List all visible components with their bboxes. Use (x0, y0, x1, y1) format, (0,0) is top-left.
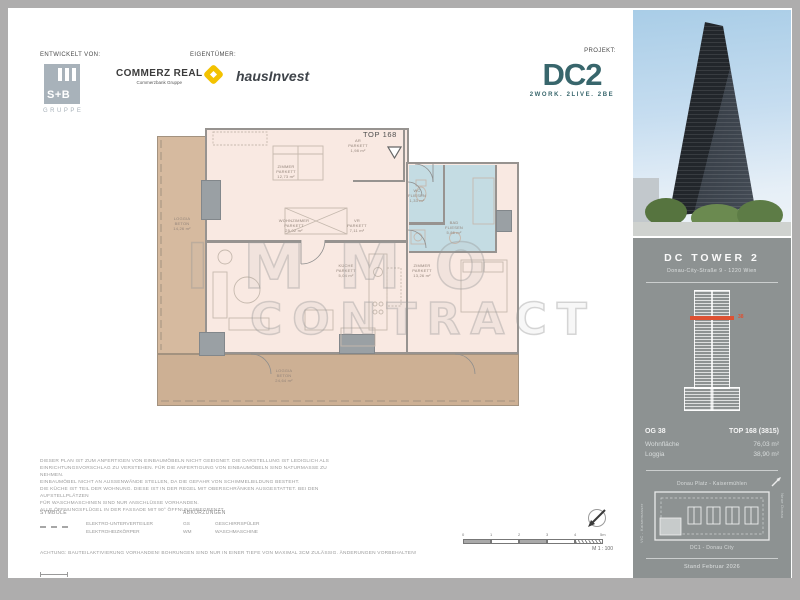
floor-label: OG 38 (645, 428, 666, 435)
note-line: DIE KÜCHE IST TEIL DER WOHNUNG. DIESE IS… (40, 486, 340, 500)
commerzbank-ring-icon (203, 64, 224, 85)
commerz-real-subtitle: Commerzbank Gruppe (116, 80, 202, 85)
divider (646, 470, 778, 471)
sb-gruppe-logo: S+B (44, 64, 80, 104)
sb-logo-text: S+B (47, 89, 70, 101)
wall-zimmer-south-right (325, 240, 407, 243)
unit-info-row: OG 38 TOP 168 (3815) (645, 428, 779, 435)
floor-plan: TOP 168 ZIMMERPARKETT12,73 m² ARPARKETT1… (155, 122, 523, 410)
scale-ratio-label: M 1 : 100 (592, 546, 613, 552)
room-label-bad: BADFLIESEN5,86 m² (431, 220, 477, 235)
plan-notes: DIESER PLAN IST ZUM ANFERTIGEN VON EINBA… (40, 458, 340, 514)
sb-logo-bar (58, 68, 62, 81)
loggia-bottom-area (157, 354, 519, 406)
commerz-real-name: COMMERZ REAL (116, 68, 202, 79)
symbols-header: SYMBOLE (40, 510, 67, 516)
loggia-area-row: Loggia 38,90 m² (645, 451, 779, 458)
building-title: DC TOWER 2 (633, 252, 791, 264)
photo-ground (633, 222, 791, 236)
room-label-vorraum: VRPARKETT7,11 m² (334, 218, 380, 233)
divider (646, 558, 778, 559)
scale-segment (575, 539, 603, 544)
commerz-real-logo: COMMERZ REAL Commerzbank Gruppe (116, 68, 202, 85)
site-map-west-label: VIC - Kaiserwasser (639, 493, 644, 543)
document-page: ENTWICKELT VON: S+B GRUPPE EIGENTÜMER: C… (8, 8, 792, 578)
room-label-wc: WCFLIESEN1,33 m² (394, 188, 440, 203)
note-line: EINBAUMÖBEL NICHT AN AUSSENWÄNDE STELLEN… (40, 479, 340, 486)
date-note: Stand Februar 2026 (633, 564, 791, 570)
unit-number: TOP 168 (3815) (729, 428, 779, 435)
scale-tick: 0 (462, 532, 464, 537)
north-arrow-icon (584, 505, 610, 531)
wall-zimmer-south-left (207, 240, 301, 243)
wall-pillar (339, 334, 375, 354)
living-area-value: 76,03 m² (753, 441, 779, 448)
scale-bar: 0 1 2 3 4 5m M 1 : 100 (463, 532, 613, 556)
abbr-key: WM (183, 530, 192, 535)
room-label-loggia-bottom: LOGGIABETON24,64 m² (261, 368, 307, 383)
site-map-north-label: Donau Platz - Kaisermühlen (633, 481, 791, 487)
abbreviations-header: ABKÜRZUNGEN (183, 510, 226, 516)
symbol-label: ELEKTRO-UNTERVERTEILER (86, 522, 153, 527)
warning-note: ACHTUNG: BAUTEILAKTIVIERUNG VORHANDEN! B… (40, 551, 460, 556)
abbr-key: GS (183, 522, 190, 527)
elevation-tower-body (694, 290, 730, 389)
wall-pillar (201, 180, 221, 220)
bathroom-block (409, 165, 497, 253)
note-line: EINRICHTUNGSVORSCHLAG ZU VERSTEHEN. FÜR … (40, 465, 340, 479)
tower-photo (633, 10, 791, 236)
room-label-abstellraum: ARPARKETT1,98 m² (335, 138, 381, 153)
site-map (654, 491, 770, 541)
note-line: DIESER PLAN IST ZUM ANFERTIGEN VON EINBA… (40, 458, 340, 465)
note-line: FÜR WASCHMASCHINEN SIND NUR ANSCHLÜSSE V… (40, 500, 340, 507)
loggia-label: Loggia (645, 451, 665, 458)
living-area-label: Wohnfläche (645, 441, 679, 448)
building-address: Donau-City-Straße 9 - 1220 Wien (633, 268, 791, 274)
site-map-east-label: Neue Donau (780, 493, 785, 543)
scale-segment (519, 539, 547, 544)
info-panel: DC TOWER 2 Donau-City-Straße 9 - 1220 Wi… (633, 238, 791, 578)
scale-tick: 2 (518, 532, 520, 537)
room-label-wohnzimmer: WOHNZIMMERPARKETT25,02 m² (271, 218, 317, 233)
symbol-electric-radiator-icon (40, 574, 68, 575)
floor-marker-label: 38 (738, 314, 744, 320)
room-label-zimmer1: ZIMMERPARKETT12,73 m² (263, 164, 309, 179)
elevation-diagram: 38 (633, 288, 791, 418)
abbr-label: WASCHMASCHINE (215, 530, 258, 535)
symbol-label: ELEKTROHEIZKÖRPER (86, 530, 140, 535)
owner-label: EIGENTÜMER: (190, 52, 236, 58)
room-label-loggia-left: LOGGIABETON14,26 m² (159, 216, 205, 231)
elevation-tower-base (684, 387, 740, 411)
entrance-marker-icon (387, 146, 402, 159)
wall-pillar (496, 210, 512, 232)
loggia-left-area (157, 136, 207, 354)
project-label: PROJEKT: (561, 48, 616, 54)
room-label-zimmer2: ZIMMERPARKETT13,26 m² (399, 263, 445, 278)
dc2-logo: DC2 2WORK. 2LIVE. 2BE (526, 60, 618, 98)
divider (646, 282, 778, 283)
sidebar: DC TOWER 2 Donau-City-Straße 9 - 1220 Wi… (633, 10, 791, 578)
living-area-row: Wohnfläche 76,03 m² (645, 441, 779, 448)
abbr-label: GESCHIRRSPÜLER (215, 522, 260, 527)
wall-pillar (199, 332, 225, 356)
scale-tick: 5m (600, 532, 606, 537)
hausinvest-logo: hausInvest (236, 68, 309, 84)
sb-logo-bar (65, 68, 69, 81)
scale-segment (547, 539, 575, 544)
loggia-value: 38,90 m² (753, 451, 779, 458)
dc2-logo-text: DC2 (526, 60, 618, 90)
scale-segment (491, 539, 519, 544)
floor-marker-band (690, 316, 734, 320)
developed-by-label: ENTWICKELT VON: (40, 52, 100, 58)
site-map-south-label: DC1 - Donau City (633, 545, 791, 551)
scale-segment (463, 539, 491, 544)
scale-tick: 4 (574, 532, 576, 537)
sb-gruppe-subtitle: GRUPPE (43, 108, 83, 114)
map-compass-icon (769, 475, 783, 489)
dc2-tagline: 2WORK. 2LIVE. 2BE (526, 92, 618, 98)
sb-logo-bar (72, 68, 76, 81)
scale-tick: 1 (490, 532, 492, 537)
scale-tick: 3 (546, 532, 548, 537)
room-label-kueche: KÜCHEPARKETT5,04 m² (323, 263, 369, 278)
scale-bar-segments (463, 539, 603, 544)
symbol-electro-subpanel-icon (40, 526, 68, 528)
wall-wc-bad (443, 165, 446, 223)
